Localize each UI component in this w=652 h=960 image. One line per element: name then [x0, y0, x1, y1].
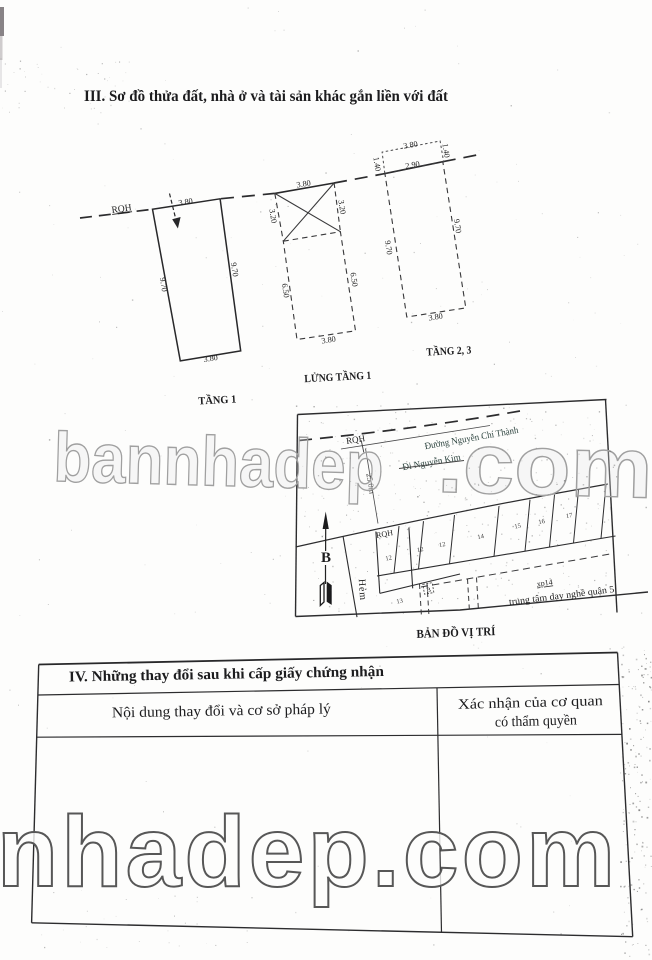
svg-text:TẦNG 1: TẦNG 1 — [198, 393, 237, 408]
svg-text:BẢN ĐỒ VỊ TRÍ: BẢN ĐỒ VỊ TRÍ — [416, 623, 496, 641]
svg-text:13: 13 — [396, 598, 404, 606]
svg-text:Hẻm: Hẻm — [356, 579, 368, 602]
svg-text:TẦNG 2, 3: TẦNG 2, 3 — [426, 343, 472, 358]
svg-text:III. Sơ đồ thửa đất, nhà ở và: III. Sơ đồ thửa đất, nhà ở và tài sản kh… — [84, 88, 449, 105]
svg-text:B: B — [321, 550, 331, 566]
svg-text:.com: .com — [436, 415, 652, 517]
svg-text:12: 12 — [385, 555, 393, 563]
svg-text:nhadep.com: nhadep.com — [0, 796, 615, 908]
svg-text:15: 15 — [514, 523, 522, 531]
svg-text:12: 12 — [416, 546, 424, 554]
svg-text:bannhadep: bannhadep — [53, 418, 385, 505]
svg-text:có thẩm quyền: có thẩm quyền — [495, 712, 578, 730]
svg-text:12: 12 — [438, 541, 446, 549]
